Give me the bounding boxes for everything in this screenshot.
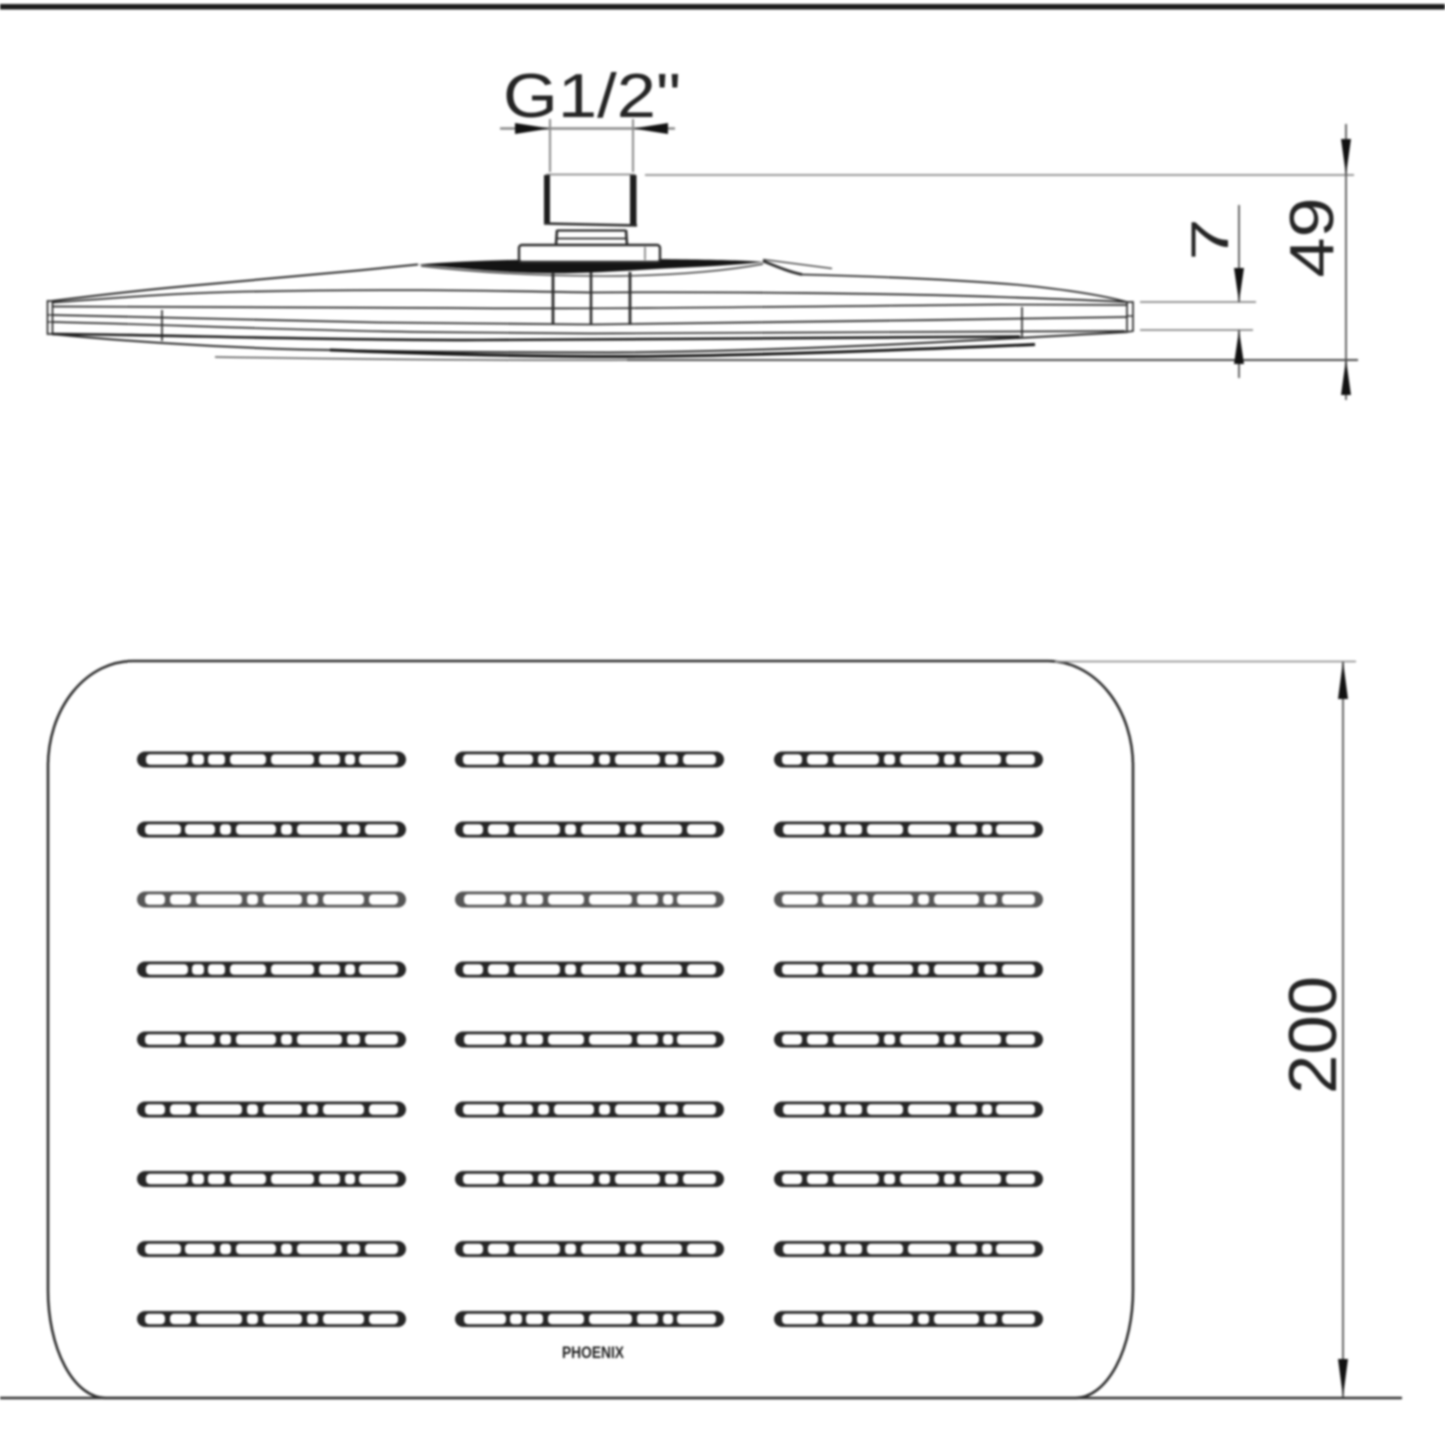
svg-text:49: 49 — [1278, 198, 1347, 278]
svg-text:PHOENIX: PHOENIX — [562, 1343, 625, 1362]
svg-text:7: 7 — [1181, 219, 1240, 261]
svg-text:G1/2": G1/2" — [503, 62, 681, 131]
svg-text:200: 200 — [1275, 976, 1351, 1094]
